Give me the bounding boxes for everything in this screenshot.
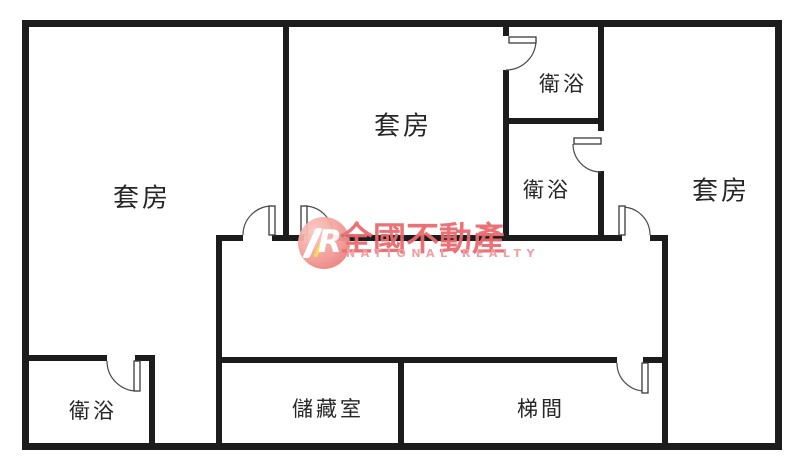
room-label-bathroom-bottom-left: 衛浴: [69, 395, 117, 425]
room-label-suite-right: 套房: [692, 171, 750, 208]
wall-segment: [222, 357, 617, 363]
door-suite-left: [243, 206, 275, 235]
door-panel: [619, 206, 625, 235]
wall-segment: [283, 27, 289, 241]
wall-segment: [643, 357, 662, 363]
door-swing-arc: [506, 40, 536, 70]
door-suite-right: [619, 206, 650, 235]
door-panel: [574, 138, 601, 144]
door-swing-arc: [573, 144, 601, 172]
room-label-storage: 儲藏室: [292, 393, 364, 423]
wall-segment: [29, 355, 107, 361]
wall-segment: [503, 27, 509, 36]
wall-segment: [216, 235, 222, 450]
wall-segment: [22, 20, 29, 450]
room-label-stairwell: 梯間: [517, 393, 565, 423]
wall-segment: [503, 118, 604, 124]
wall-segment: [22, 20, 782, 27]
wall-segment: [662, 235, 668, 450]
door-panel: [509, 37, 536, 43]
wall-segment: [149, 355, 155, 450]
door-swing-arc: [617, 363, 645, 391]
wall-segment: [398, 363, 404, 450]
room-label-bathroom-middle: 衛浴: [523, 174, 571, 204]
door-panel: [642, 363, 648, 393]
door-stairwell: [617, 363, 648, 393]
floor-plan: 套房 套房 套房 衛浴 衛浴 衛浴 儲藏室 梯間 R 全國不動產 NATIONA…: [0, 0, 800, 476]
door-bathroom-top: [506, 37, 536, 70]
room-label-bathroom-top: 衛浴: [539, 68, 587, 98]
room-label-suite-left: 套房: [113, 178, 171, 215]
door-swing-arc: [243, 206, 272, 235]
door-swing-arc: [107, 361, 137, 391]
watermark-brand-name-en: NATIONAL REALTY: [346, 247, 540, 260]
wall-segment: [598, 171, 604, 241]
door-bathroom-middle: [573, 138, 601, 172]
door-bathroom-bottom-left: [107, 361, 140, 391]
logo-letter: R: [318, 224, 342, 260]
door-swing-arc: [622, 207, 650, 235]
door-panel: [269, 206, 275, 235]
room-label-suite-middle: 套房: [374, 106, 432, 143]
wall-segment: [775, 20, 782, 450]
wall-segment: [598, 27, 604, 131]
door-panel: [134, 361, 140, 391]
